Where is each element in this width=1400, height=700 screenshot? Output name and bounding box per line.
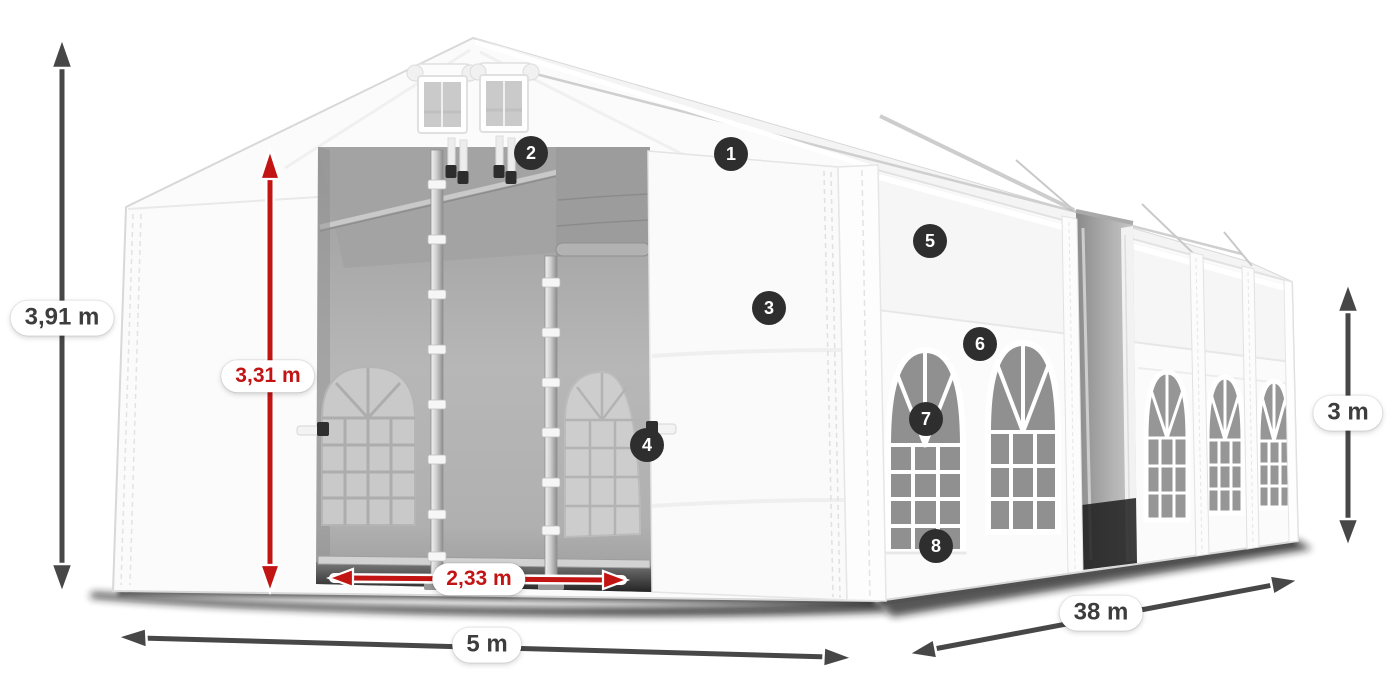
callout-badge-4[interactable]: 4 xyxy=(630,428,664,462)
callout-badge-5[interactable]: 5 xyxy=(913,224,947,258)
callout-badge-1[interactable]: 1 xyxy=(714,137,748,171)
callout-badge-6[interactable]: 6 xyxy=(963,327,997,361)
dimension-label-width: 5 m xyxy=(452,628,521,663)
front-right-door-panel xyxy=(646,151,847,600)
side-window-5 xyxy=(1258,381,1290,508)
interior-window-left xyxy=(322,367,415,525)
dimension-label-length: 38 m xyxy=(1060,596,1143,631)
callout-badge-3[interactable]: 3 xyxy=(752,291,786,325)
front-entrance-interior xyxy=(316,147,652,592)
dimension-label-side-height: 3 m xyxy=(1313,396,1382,431)
dimension-label-total-height: 3,91 m xyxy=(11,301,114,336)
callout-badge-7[interactable]: 7 xyxy=(909,402,943,436)
side-window-2 xyxy=(988,343,1058,532)
side-window-3 xyxy=(1146,372,1188,520)
corner-column xyxy=(838,165,886,601)
gable-vent-right xyxy=(470,63,539,132)
side-window-1 xyxy=(886,350,965,553)
dimension-label-door-height: 3,31 m xyxy=(221,360,314,392)
tent-dimension-diagram: 3,91 m 3,31 m 2,33 m 5 m 38 m 3 m 1 2 3 … xyxy=(0,0,1400,700)
tent-illustration xyxy=(0,0,1400,700)
side-window-4 xyxy=(1207,377,1243,513)
callout-badge-8[interactable]: 8 xyxy=(919,529,953,563)
callout-badge-2[interactable]: 2 xyxy=(514,136,548,170)
gable-vent-left xyxy=(407,64,478,133)
side-door-opening xyxy=(1076,211,1137,570)
dimension-label-door-width: 2,33 m xyxy=(432,563,525,595)
